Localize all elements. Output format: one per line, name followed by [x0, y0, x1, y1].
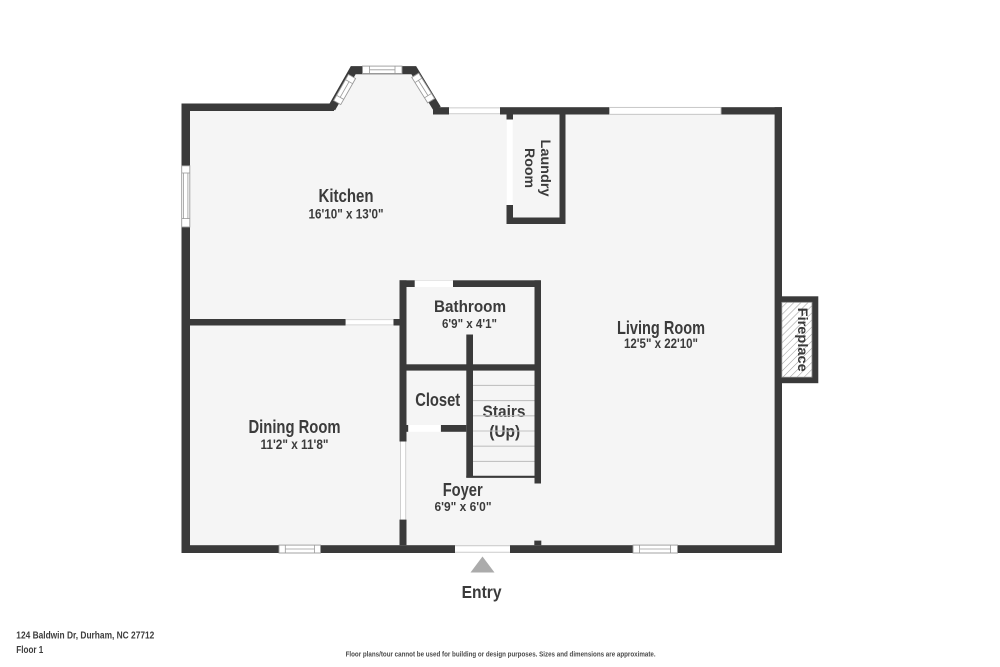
svg-text:Kitchen: Kitchen	[319, 186, 374, 206]
svg-text:6'9" x 4'1": 6'9" x 4'1"	[442, 316, 497, 331]
svg-text:6'9" x 6'0": 6'9" x 6'0"	[435, 499, 492, 514]
svg-text:16'10" x 13'0": 16'10" x 13'0"	[309, 207, 384, 222]
svg-text:Foyer: Foyer	[443, 480, 483, 500]
svg-text:Bathroom: Bathroom	[434, 297, 506, 316]
svg-text:Closet: Closet	[415, 390, 460, 410]
svg-text:Stairs: Stairs	[483, 402, 526, 421]
svg-text:Living Room: Living Room	[617, 318, 705, 338]
svg-text:Floor plans/tour cannot be use: Floor plans/tour cannot be used for buil…	[346, 652, 656, 659]
svg-text:Dining Room: Dining Room	[249, 417, 341, 437]
svg-text:Entry: Entry	[462, 582, 502, 602]
svg-text:124 Baldwin Dr, Durham, NC 277: 124 Baldwin Dr, Durham, NC 27712	[16, 629, 154, 641]
svg-text:Floor 1: Floor 1	[16, 644, 43, 656]
svg-text:Fireplace: Fireplace	[795, 308, 810, 373]
svg-text:12'5" x 22'10": 12'5" x 22'10"	[624, 336, 698, 351]
svg-text:11'2" x 11'8": 11'2" x 11'8"	[261, 437, 329, 452]
